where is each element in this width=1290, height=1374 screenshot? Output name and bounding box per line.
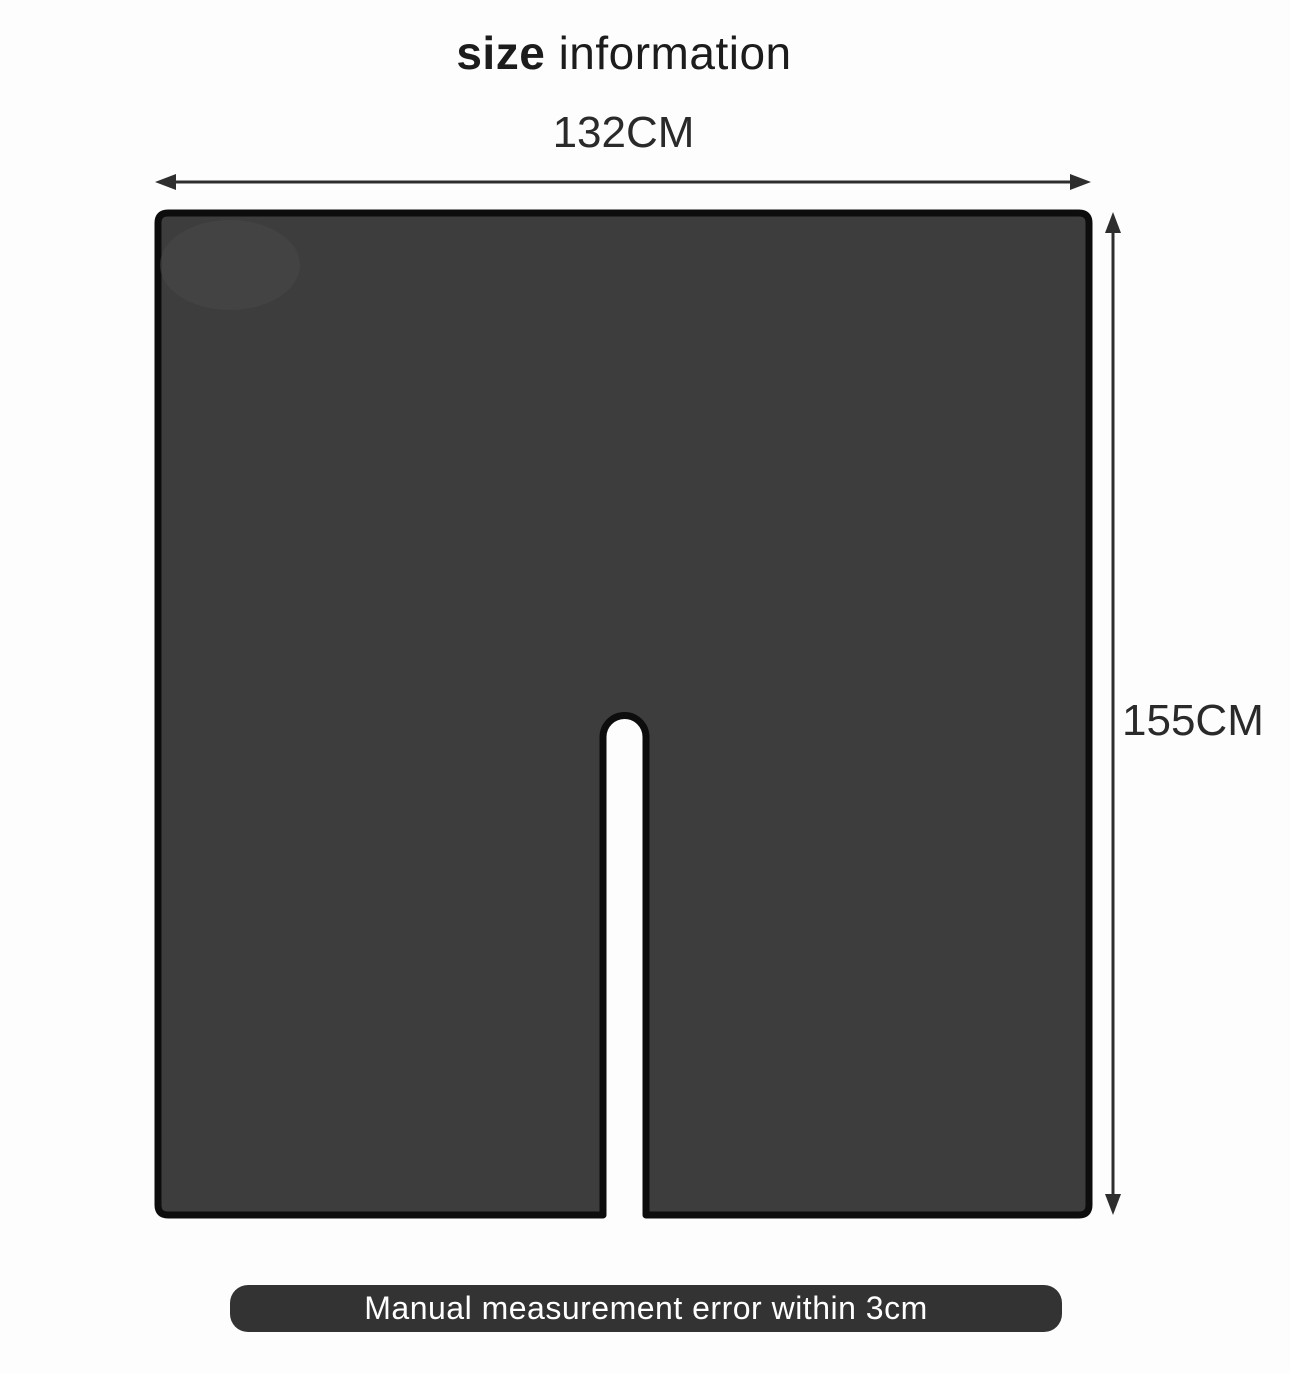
height-dimension-label: 155CM (1122, 696, 1264, 746)
height-arrow (1105, 212, 1121, 1215)
arrow-down-icon (1105, 1194, 1121, 1215)
garment-shape (158, 213, 1089, 1215)
size-diagram (0, 0, 1290, 1374)
measurement-note-text: Manual measurement error within 3cm (364, 1290, 927, 1327)
arrow-left-icon (155, 174, 176, 190)
width-arrow (155, 174, 1091, 190)
measurement-note-pill: Manual measurement error within 3cm (230, 1285, 1062, 1332)
arrow-right-icon (1070, 174, 1091, 190)
size-information-page: size information 132CM 155CM Manual meas… (0, 0, 1290, 1374)
shape-highlight (160, 220, 300, 310)
arrow-up-icon (1105, 212, 1121, 233)
